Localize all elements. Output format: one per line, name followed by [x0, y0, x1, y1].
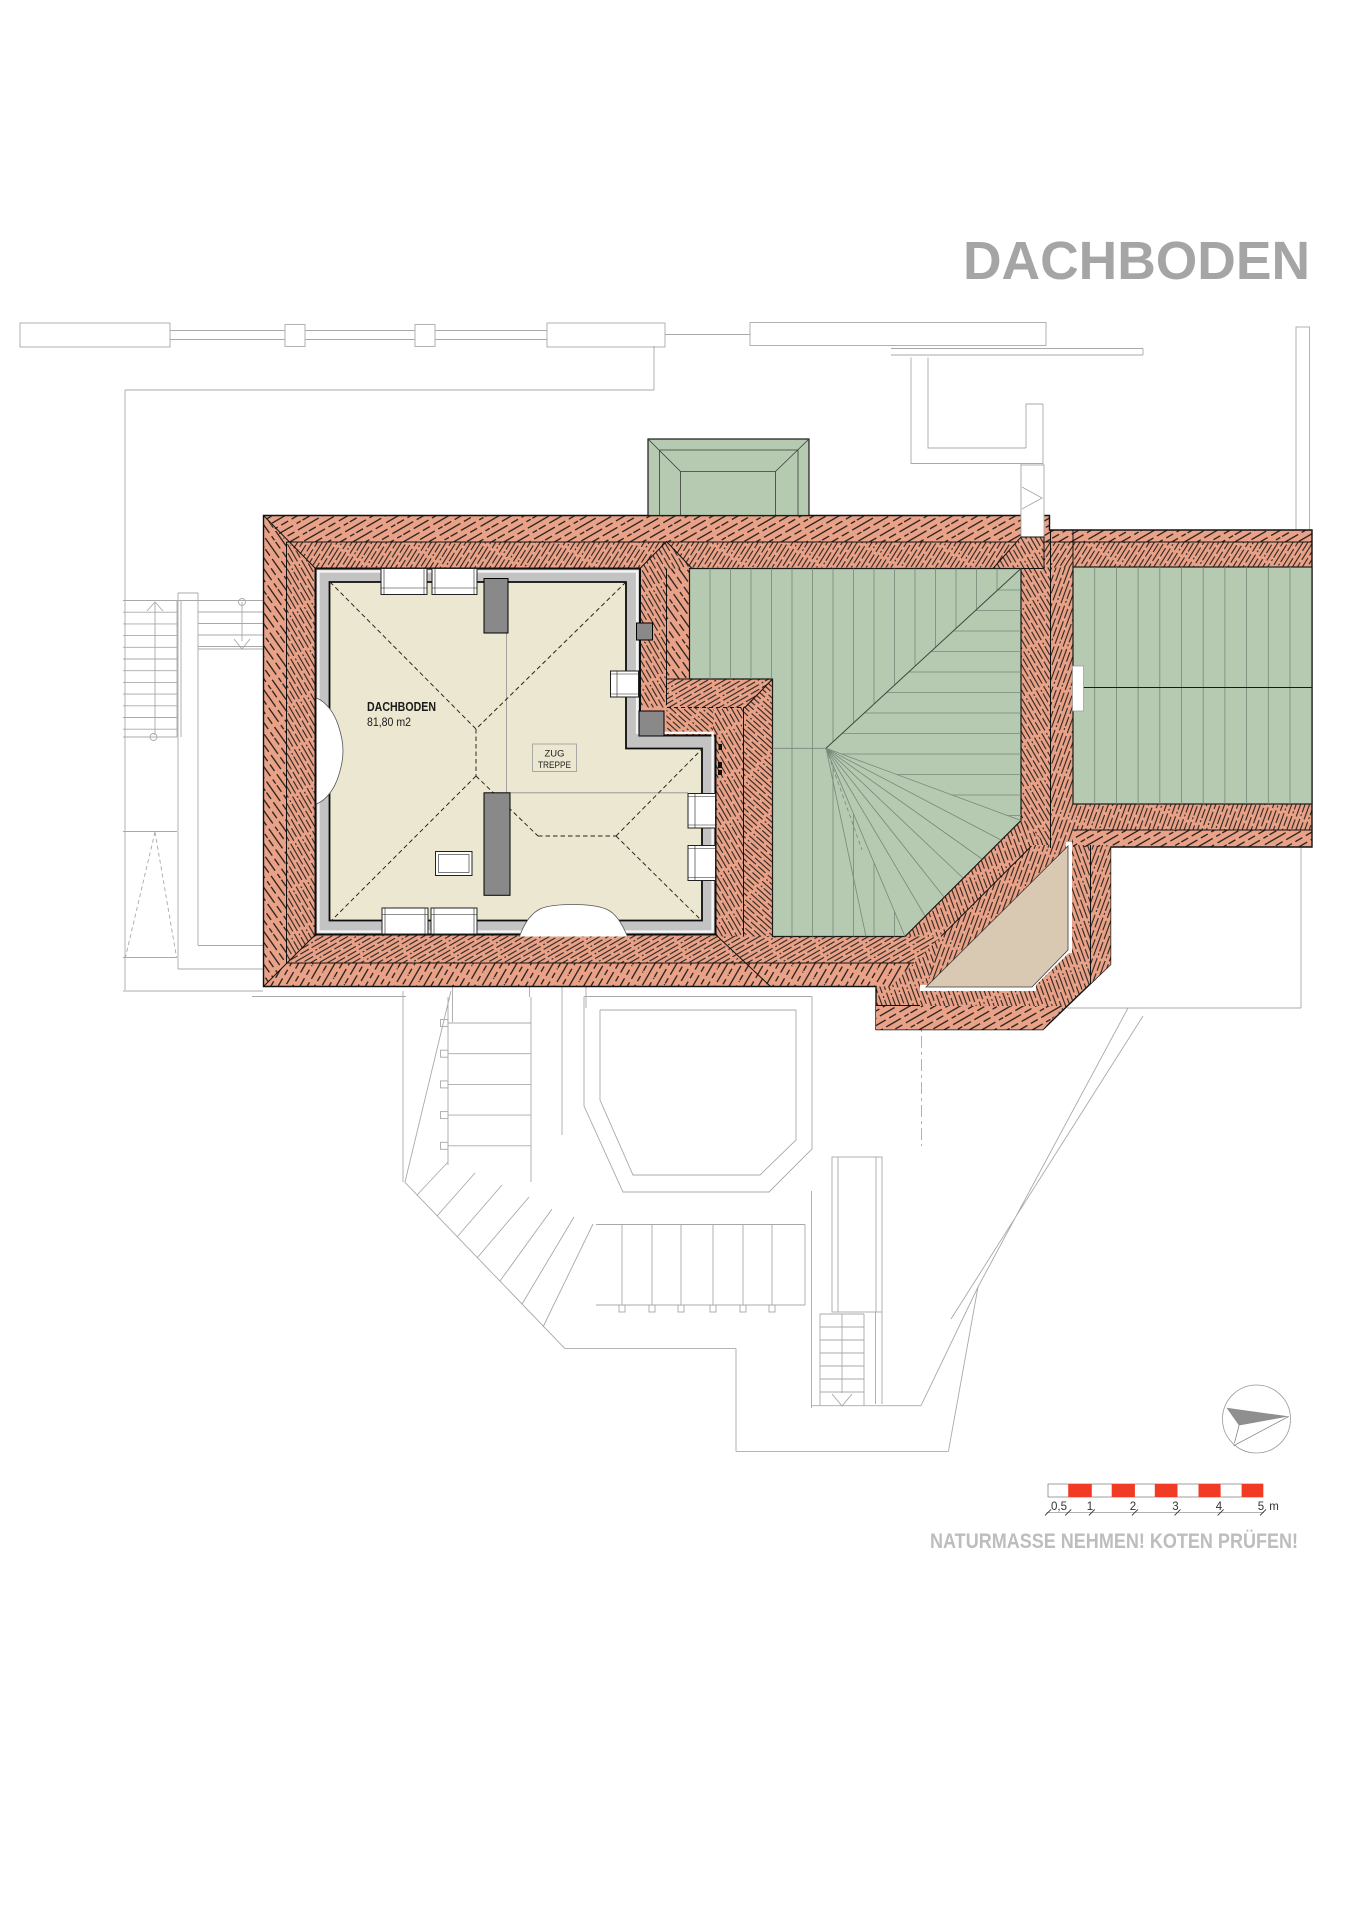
svg-text:DACHBODEN: DACHBODEN: [963, 231, 1310, 291]
svg-text:m: m: [1269, 1501, 1279, 1513]
svg-text:0,5: 0,5: [1051, 1501, 1067, 1513]
svg-text:3: 3: [1172, 1501, 1178, 1513]
svg-text:TREPPE: TREPPE: [538, 760, 571, 770]
svg-text:1: 1: [1087, 1501, 1093, 1513]
svg-text:NATURMASSE NEHMEN! KOTEN PRÜFE: NATURMASSE NEHMEN! KOTEN PRÜFEN!: [930, 1530, 1298, 1553]
svg-text:2: 2: [1130, 1501, 1136, 1513]
svg-text:DACHBODEN: DACHBODEN: [367, 700, 436, 714]
svg-text:5: 5: [1258, 1501, 1264, 1513]
svg-text:ZUG: ZUG: [545, 749, 565, 759]
svg-text:81,80 m2: 81,80 m2: [367, 717, 411, 729]
